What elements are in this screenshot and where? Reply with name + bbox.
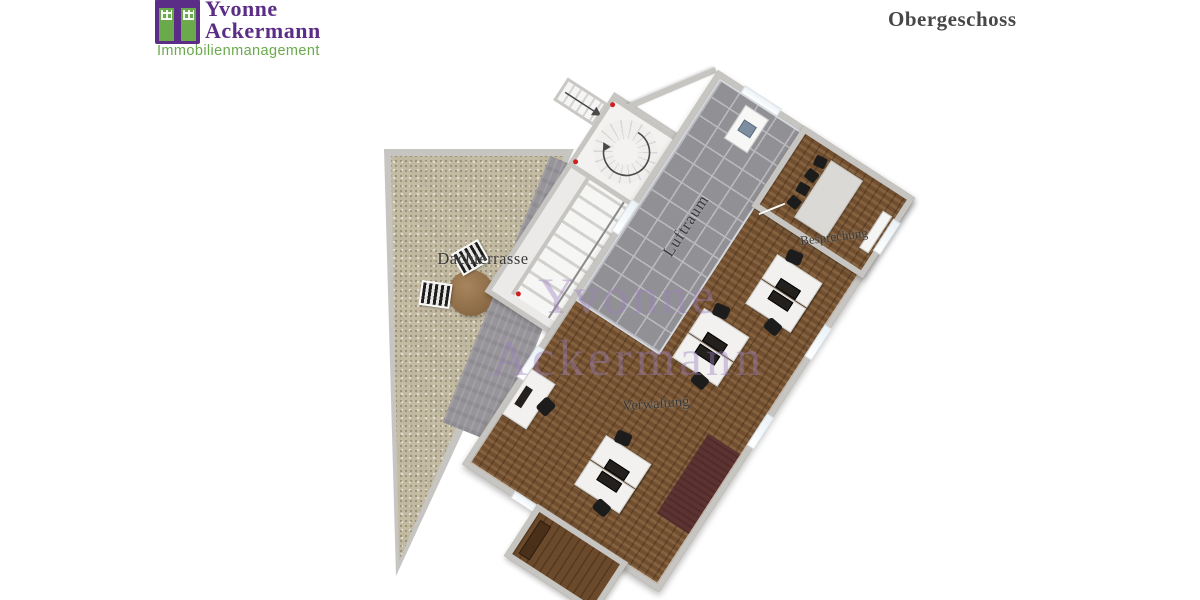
watermark: Yvonne Ackermann	[428, 266, 828, 390]
logo-tagline: Immobilienmanagement	[157, 43, 320, 59]
door-leaf	[759, 203, 786, 215]
logo-name-line2: Ackermann	[205, 20, 321, 41]
label-luftraum: Luftraum	[645, 170, 727, 282]
dark-rug	[657, 433, 741, 533]
watermark-line2: Ackermann	[428, 328, 828, 390]
logo-door-right	[181, 8, 196, 41]
wall-fixture	[724, 105, 769, 154]
logo-building-icon	[155, 0, 200, 44]
window	[748, 414, 773, 448]
page-title: Obergeschoss	[888, 7, 1017, 32]
logo-door-left	[159, 8, 174, 41]
desk-pair	[571, 429, 656, 519]
watermark-line1: Yvonne	[428, 266, 828, 328]
logo-name-line1: Yvonne	[205, 0, 278, 19]
floorplan-page: Yvonne Ackermann Immobilienmanagement Ob…	[0, 0, 1200, 600]
sideboard	[519, 520, 552, 561]
fixture-panel	[737, 119, 757, 138]
